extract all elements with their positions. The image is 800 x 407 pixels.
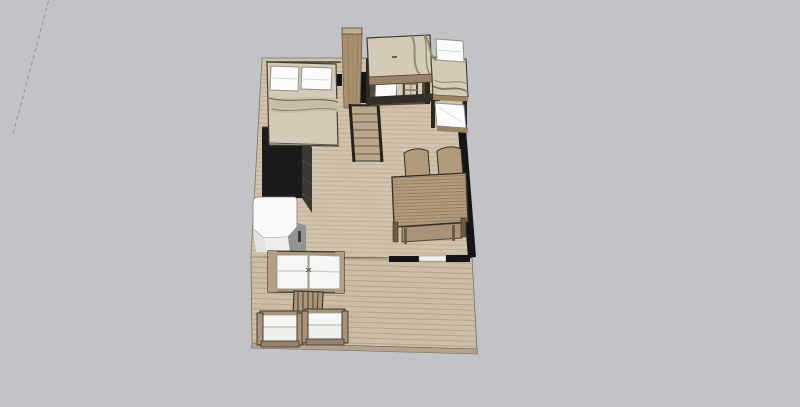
dining-chair-left[interactable] [404,149,430,179]
pillow-right[interactable] [301,67,332,90]
fridge-top[interactable] [253,197,297,238]
model-canvas[interactable] [0,0,800,407]
side-bunk-upper-blanket[interactable] [431,57,468,97]
side-bunk-lower-mattress[interactable] [435,103,466,128]
sofa-arm-left [268,251,277,292]
armchair-seat-cushion[interactable] [263,327,297,341]
dining-table-grain [392,173,468,227]
bed-fold-band [269,96,338,113]
column-body[interactable] [342,34,362,108]
armchair-arm-left [257,313,263,345]
double-bed[interactable] [267,62,338,146]
armchair-right[interactable] [302,309,348,345]
glass-door[interactable] [419,256,446,261]
armchair-left[interactable] [257,311,303,347]
sofa-cushion-left[interactable] [277,255,308,289]
armchair-front-rail [306,339,344,345]
wall-segment-b[interactable] [446,255,470,262]
wardrobe-column[interactable] [342,28,362,108]
fridge-handle[interactable] [298,231,301,242]
side-bunk-post-left [431,100,435,128]
armchair-arm-left [302,311,308,343]
armchair-back-cushion[interactable] [308,313,342,325]
model-viewport[interactable] [0,0,800,407]
armchair-front-rail [261,341,299,347]
dining-chair-right[interactable] [437,147,463,177]
fridge-front [264,237,290,252]
staircase[interactable] [350,104,382,162]
upper-bunk-mattress[interactable] [367,35,432,79]
armchair-back-cushion[interactable] [263,315,297,327]
armchair-arm-right [342,311,348,343]
armchair-seat-cushion[interactable] [308,325,342,339]
wall-segment-a[interactable] [389,256,419,262]
sofa[interactable] [268,251,344,293]
column-cap [342,28,362,34]
